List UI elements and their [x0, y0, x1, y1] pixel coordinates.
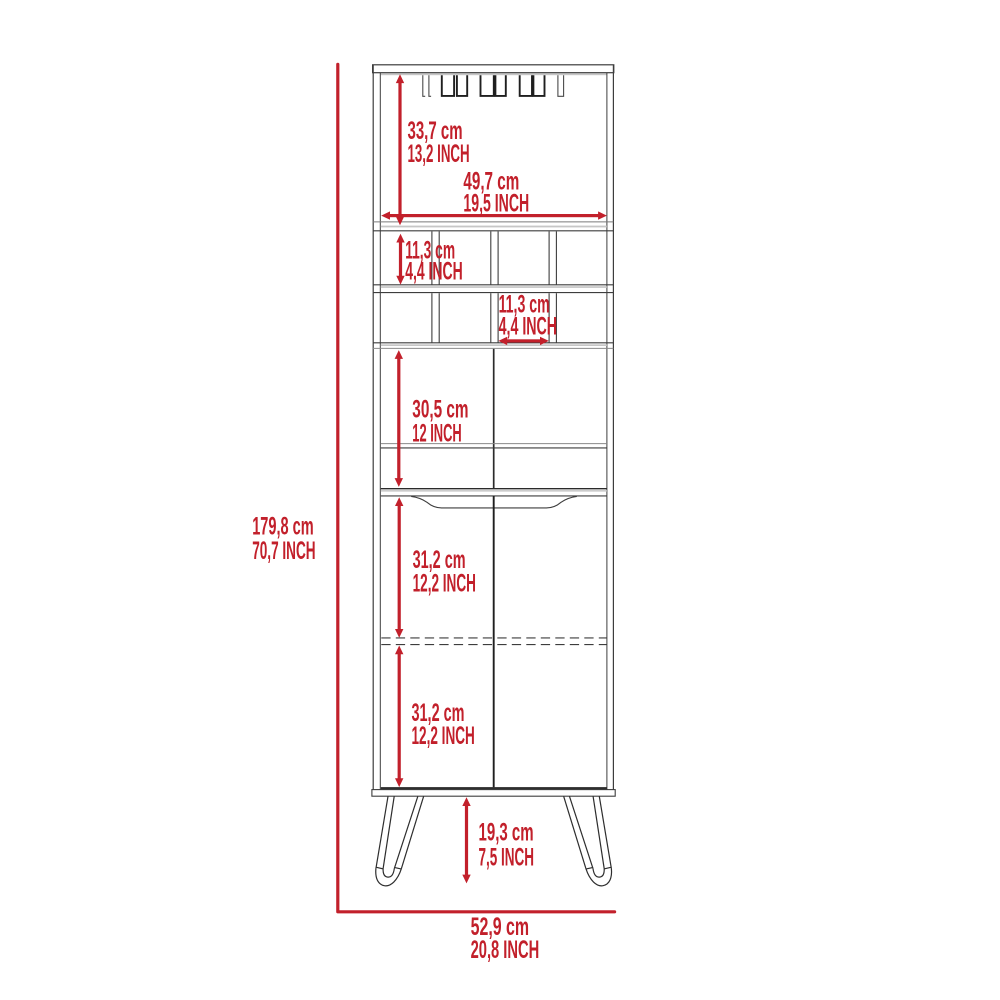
svg-text:12,2 INCH: 12,2 INCH — [412, 723, 475, 750]
svg-text:4,4 INCH: 4,4 INCH — [499, 314, 557, 341]
svg-text:12 INCH: 12 INCH — [412, 420, 461, 448]
svg-text:7,5 INCH: 7,5 INCH — [479, 844, 535, 871]
svg-text:13,2 INCH: 13,2 INCH — [408, 141, 470, 168]
svg-text:12,2 INCH: 12,2 INCH — [413, 570, 476, 597]
svg-text:19,5 INCH: 19,5 INCH — [463, 190, 529, 217]
svg-text:179,8 cm: 179,8 cm — [252, 513, 313, 541]
svg-text:19,3 cm: 19,3 cm — [479, 819, 534, 847]
svg-text:70,7 INCH: 70,7 INCH — [252, 538, 315, 565]
svg-text:20,8 INCH: 20,8 INCH — [471, 936, 540, 964]
svg-text:4,4 INCH: 4,4 INCH — [405, 259, 463, 286]
